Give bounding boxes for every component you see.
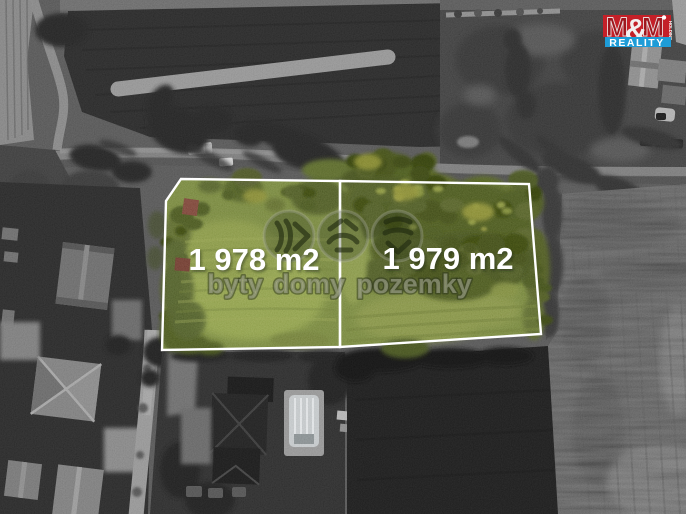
svg-text:REALITY: REALITY (609, 37, 664, 49)
svg-text:1 979 m2: 1 979 m2 (383, 241, 514, 276)
svg-text:1 978 m2: 1 978 m2 (189, 242, 320, 277)
